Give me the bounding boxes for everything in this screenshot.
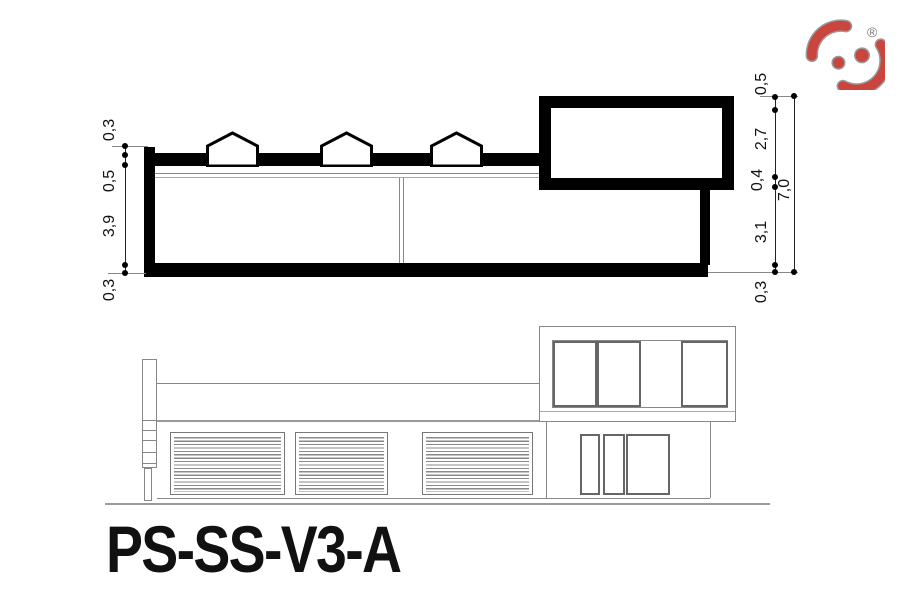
pillar-bracket bbox=[142, 463, 157, 464]
garage-door-slats bbox=[299, 435, 384, 492]
garage-door bbox=[422, 432, 533, 495]
lower-storey-right-edge bbox=[710, 422, 711, 498]
dimension-dot bbox=[772, 269, 778, 275]
dimension-dot bbox=[122, 270, 128, 276]
dimension-dot bbox=[772, 94, 778, 100]
pillar-stem bbox=[144, 468, 152, 501]
section-left-wall bbox=[144, 147, 155, 277]
entrance-panel bbox=[580, 434, 600, 495]
section-roof-slab bbox=[155, 153, 209, 166]
upper-window-unit bbox=[681, 341, 728, 407]
dimension-label: 0,5 bbox=[102, 159, 118, 203]
ground-extension-line bbox=[708, 272, 798, 273]
pillar-bracket bbox=[142, 452, 157, 453]
section-roof-slab bbox=[256, 153, 322, 166]
dimension-label: 3,9 bbox=[102, 204, 118, 248]
dimension-label: 0,4 bbox=[750, 158, 766, 202]
ground-line bbox=[105, 503, 770, 505]
dimension-dot bbox=[772, 262, 778, 268]
skylight-icon bbox=[206, 131, 259, 167]
dimension-line-total bbox=[794, 96, 795, 272]
section-floor-slab bbox=[144, 263, 708, 277]
section-ceiling-line bbox=[155, 177, 539, 178]
section-ceiling-line bbox=[155, 173, 539, 174]
upper-sill-line bbox=[540, 411, 735, 412]
dimension-dot bbox=[122, 143, 128, 149]
dimension-label: 0,5 bbox=[754, 62, 770, 106]
entrance-panel bbox=[603, 434, 625, 495]
garage-door-slats bbox=[426, 435, 529, 492]
facade-base-line bbox=[157, 498, 710, 499]
window-mullion bbox=[595, 342, 599, 406]
facade-top-line bbox=[157, 383, 539, 384]
pillar-bracket bbox=[142, 430, 157, 431]
dimension-label: 3,1 bbox=[754, 210, 770, 254]
dimension-dot bbox=[772, 107, 778, 113]
garage-door bbox=[170, 432, 285, 495]
dimension-dot bbox=[122, 262, 128, 268]
dimension-label: 0,3 bbox=[102, 108, 118, 152]
lower-storey-left-edge bbox=[546, 422, 547, 498]
pillar-bracket bbox=[142, 440, 157, 441]
dimension-dot bbox=[791, 269, 797, 275]
brand-logo-icon: ® bbox=[795, 10, 885, 90]
dimension-label-total: 7,0 bbox=[777, 168, 793, 212]
section-right-wall bbox=[700, 188, 710, 265]
skylight-icon bbox=[430, 131, 483, 167]
dimension-dot bbox=[122, 152, 128, 158]
section-upper-storey bbox=[539, 96, 734, 190]
section-roof-slab bbox=[370, 153, 432, 166]
entrance-door bbox=[626, 434, 670, 495]
dimension-dot bbox=[122, 162, 128, 168]
dimension-label: 2,7 bbox=[754, 117, 770, 161]
dimension-dot bbox=[791, 93, 797, 99]
facade-fascia-line bbox=[157, 420, 546, 422]
section-roof-slab bbox=[480, 153, 541, 166]
skylight-icon bbox=[320, 131, 373, 167]
pillar-bracket bbox=[142, 420, 157, 421]
registered-trademark-icon: ® bbox=[867, 24, 878, 40]
garage-door bbox=[295, 432, 388, 495]
garage-door-slats bbox=[174, 435, 281, 492]
section-partition-wall bbox=[403, 178, 404, 263]
section-partition-wall bbox=[399, 178, 400, 263]
dimension-label: 0,3 bbox=[754, 270, 770, 314]
drawing-sheet: 0,3 0,5 3,9 0,3 0,5 2,7 0,4 3,1 0,3 7,0 bbox=[0, 0, 900, 600]
dimension-label: 0,3 bbox=[102, 268, 118, 312]
drawing-title: PS-SS-V3-A bbox=[106, 516, 400, 582]
